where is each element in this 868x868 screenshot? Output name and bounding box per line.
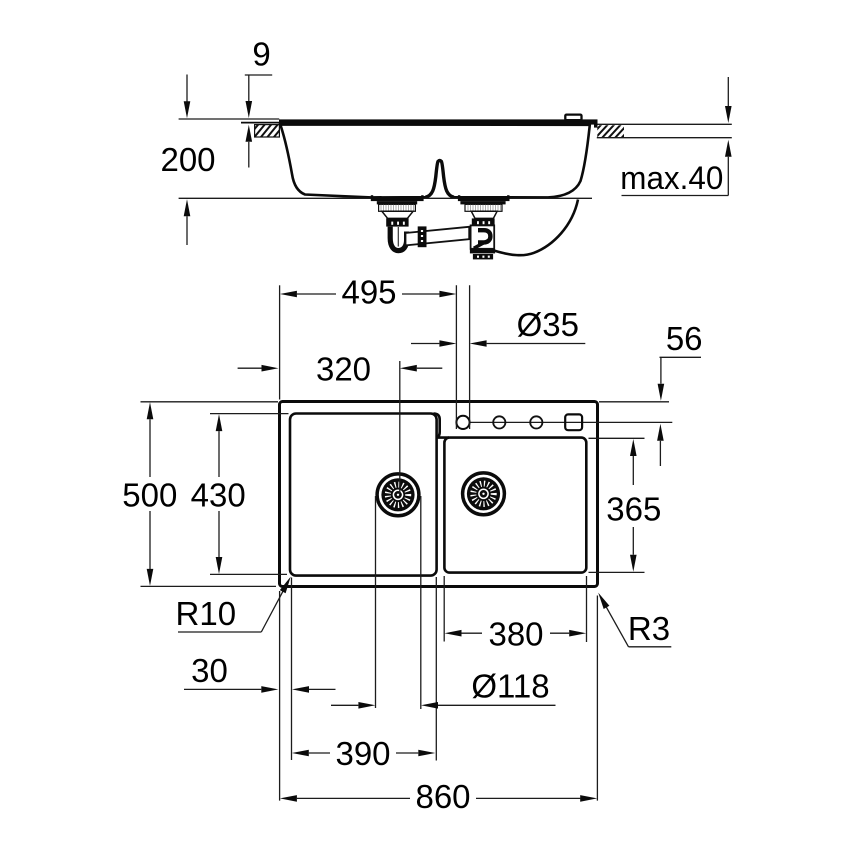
svg-text:30: 30 bbox=[191, 652, 228, 689]
svg-text:390: 390 bbox=[335, 735, 390, 772]
svg-text:Ø35: Ø35 bbox=[517, 306, 579, 343]
svg-text:56: 56 bbox=[666, 320, 703, 357]
svg-text:9: 9 bbox=[252, 36, 270, 73]
svg-text:860: 860 bbox=[415, 778, 470, 815]
svg-text:380: 380 bbox=[488, 616, 543, 653]
svg-text:200: 200 bbox=[160, 141, 215, 178]
svg-text:R3: R3 bbox=[628, 610, 670, 647]
svg-text:Ø118: Ø118 bbox=[471, 667, 549, 704]
svg-text:R10: R10 bbox=[176, 595, 237, 632]
svg-text:320: 320 bbox=[316, 350, 371, 387]
svg-text:495: 495 bbox=[341, 273, 396, 310]
svg-text:max.40: max.40 bbox=[620, 160, 723, 196]
svg-text:365: 365 bbox=[606, 491, 661, 528]
svg-text:500: 500 bbox=[122, 477, 177, 514]
svg-text:430: 430 bbox=[191, 477, 246, 514]
